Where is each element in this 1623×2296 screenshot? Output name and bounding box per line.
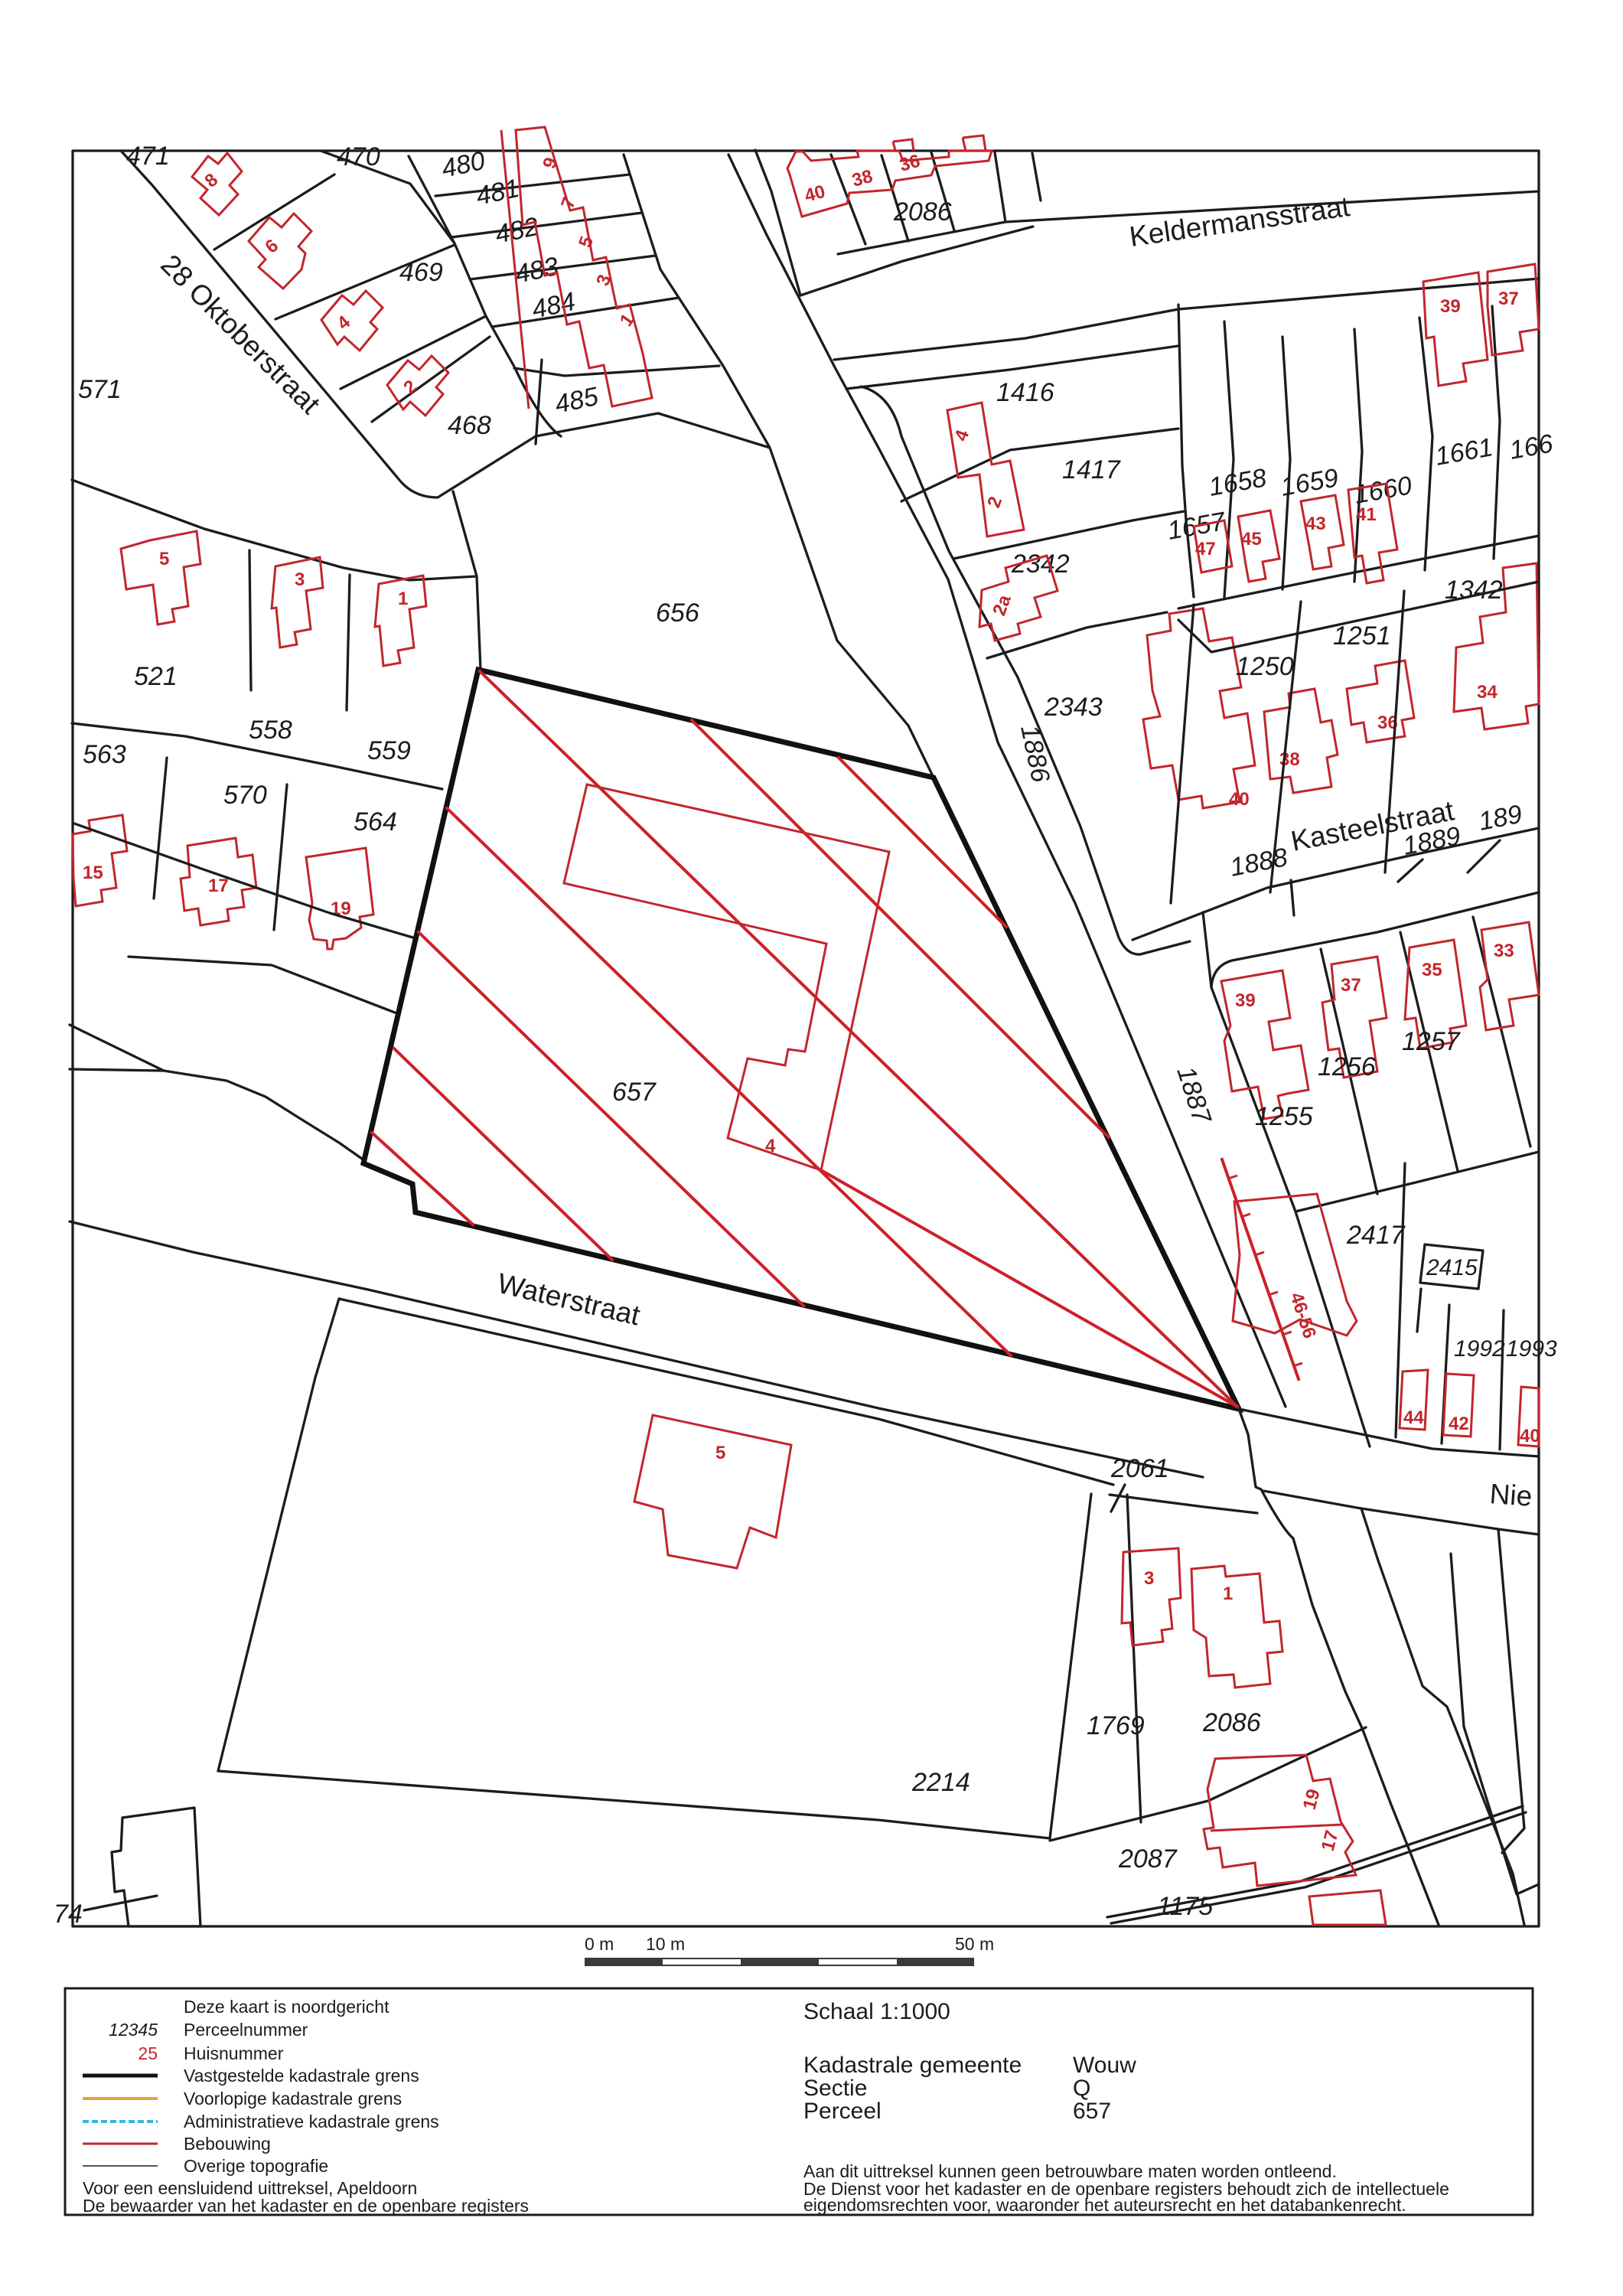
svg-text:570: 570 <box>223 781 267 810</box>
svg-text:2417: 2417 <box>1346 1221 1406 1250</box>
svg-text:1175: 1175 <box>1157 1892 1213 1921</box>
svg-text:656: 656 <box>656 598 699 628</box>
svg-text:39: 39 <box>1440 296 1461 317</box>
svg-text:De bewaarder van het kadaster: De bewaarder van het kadaster en de open… <box>83 2196 529 2216</box>
svg-text:40: 40 <box>1229 789 1250 810</box>
svg-text:5: 5 <box>715 1443 725 1463</box>
svg-text:Administratieve kadastrale gre: Administratieve kadastrale grens <box>184 2112 439 2131</box>
svg-text:1255: 1255 <box>1255 1102 1313 1131</box>
svg-text:1992: 1992 <box>1454 1336 1505 1362</box>
svg-text:521: 521 <box>134 662 178 691</box>
svg-text:0 m: 0 m <box>585 1934 614 1954</box>
svg-text:2087: 2087 <box>1118 1844 1178 1874</box>
svg-text:1417: 1417 <box>1062 455 1121 484</box>
svg-text:12345: 12345 <box>109 2020 158 2040</box>
svg-text:2061: 2061 <box>1110 1454 1169 1483</box>
svg-text:1257: 1257 <box>1402 1027 1461 1056</box>
svg-text:Bebouwing: Bebouwing <box>184 2134 271 2154</box>
svg-text:Perceel: Perceel <box>803 2099 882 2124</box>
svg-text:Overige topografie: Overige topografie <box>184 2156 328 2176</box>
svg-text:Huisnummer: Huisnummer <box>184 2043 284 2063</box>
svg-text:39: 39 <box>1235 990 1256 1011</box>
svg-text:4: 4 <box>765 1136 776 1156</box>
svg-text:559: 559 <box>367 736 411 765</box>
svg-text:1: 1 <box>1223 1583 1233 1604</box>
svg-text:41: 41 <box>1356 504 1377 525</box>
svg-text:1251: 1251 <box>1333 621 1391 651</box>
svg-text:33: 33 <box>1494 941 1514 961</box>
svg-text:44: 44 <box>1403 1407 1424 1428</box>
svg-text:15: 15 <box>83 863 103 883</box>
svg-text:657: 657 <box>1073 2099 1111 2124</box>
svg-text:571: 571 <box>78 375 122 404</box>
svg-text:3: 3 <box>295 569 305 590</box>
svg-text:1769: 1769 <box>1087 1711 1145 1740</box>
svg-text:25: 25 <box>138 2043 158 2063</box>
svg-text:45: 45 <box>1241 529 1262 550</box>
svg-text:2086: 2086 <box>893 197 952 227</box>
svg-text:10 m: 10 m <box>646 1934 685 1954</box>
svg-text:43: 43 <box>1305 514 1326 534</box>
svg-text:657: 657 <box>612 1078 657 1107</box>
svg-text:Kadastrale gemeente: Kadastrale gemeente <box>803 2053 1022 2078</box>
svg-text:Wouw: Wouw <box>1073 2053 1136 2078</box>
svg-text:564: 564 <box>354 807 397 837</box>
svg-text:1: 1 <box>398 589 408 609</box>
svg-text:2343: 2343 <box>1044 693 1103 722</box>
svg-text:558: 558 <box>249 716 292 745</box>
svg-text:2415: 2415 <box>1426 1255 1478 1280</box>
svg-text:37: 37 <box>1341 975 1361 996</box>
svg-text:40: 40 <box>1520 1426 1540 1446</box>
svg-text:35: 35 <box>1422 960 1442 980</box>
svg-text:Nie: Nie <box>1488 1478 1533 1512</box>
svg-text:Vastgestelde kadastrale grens: Vastgestelde kadastrale grens <box>184 2066 419 2086</box>
svg-text:1416: 1416 <box>996 378 1054 407</box>
svg-text:Deze kaart is noordgericht: Deze kaart is noordgericht <box>184 1997 389 2017</box>
svg-text:3: 3 <box>1144 1568 1154 1589</box>
svg-text:17: 17 <box>208 876 229 896</box>
svg-text:1250: 1250 <box>1236 652 1294 681</box>
svg-text:563: 563 <box>83 740 126 769</box>
svg-text:1256: 1256 <box>1318 1052 1376 1081</box>
svg-text:471: 471 <box>126 142 170 171</box>
svg-text:50 m: 50 m <box>955 1934 994 1954</box>
svg-text:Voorlopige kadastrale grens: Voorlopige kadastrale grens <box>184 2089 402 2108</box>
svg-text:eigendomsrechten voor, waarond: eigendomsrechten voor, waaronder het aut… <box>803 2195 1406 2215</box>
svg-text:468: 468 <box>448 411 491 440</box>
svg-text:Sectie: Sectie <box>803 2076 867 2101</box>
svg-text:47: 47 <box>1195 539 1216 559</box>
svg-text:1993: 1993 <box>1506 1336 1557 1362</box>
svg-text:37: 37 <box>1498 289 1519 309</box>
svg-text:Q: Q <box>1073 2076 1090 2101</box>
svg-text:2214: 2214 <box>911 1768 970 1797</box>
svg-text:5: 5 <box>159 549 169 569</box>
svg-text:Schaal 1:1000: Schaal 1:1000 <box>803 1999 950 2024</box>
svg-text:42: 42 <box>1449 1414 1469 1434</box>
svg-text:470: 470 <box>337 142 380 171</box>
svg-text:469: 469 <box>399 258 443 287</box>
svg-text:Perceelnummer: Perceelnummer <box>184 2020 308 2040</box>
svg-text:2086: 2086 <box>1202 1708 1261 1737</box>
svg-text:74: 74 <box>54 1900 83 1929</box>
svg-text:34: 34 <box>1477 682 1498 703</box>
